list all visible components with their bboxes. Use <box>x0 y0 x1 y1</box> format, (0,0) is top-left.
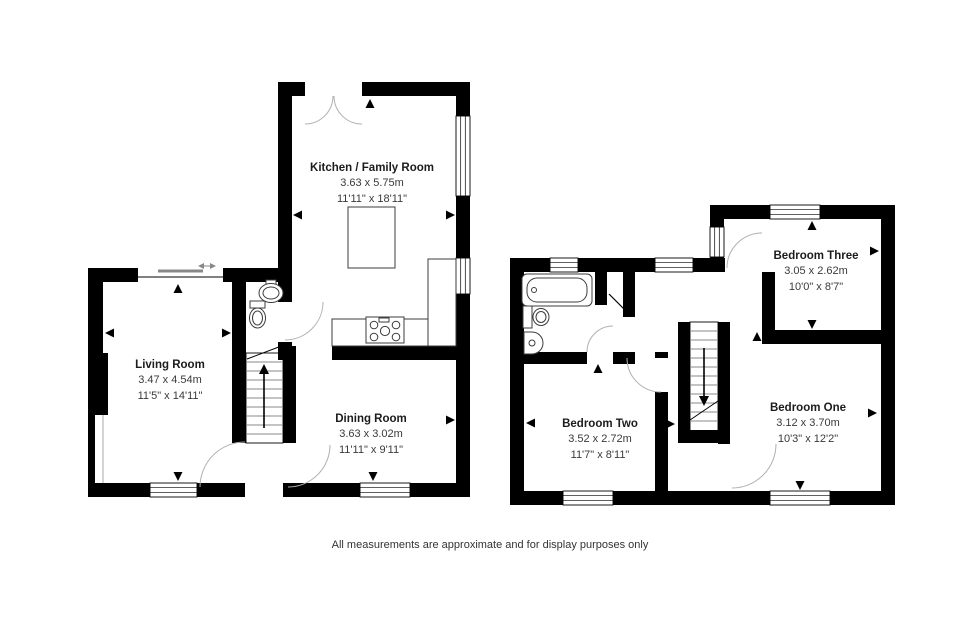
ground-floor-windows <box>150 116 470 497</box>
wall <box>223 268 292 282</box>
window <box>456 258 470 294</box>
wall <box>762 330 895 344</box>
window <box>360 483 410 497</box>
bathroom-fixtures <box>522 274 592 354</box>
window <box>150 483 197 497</box>
stairs-down-icon <box>690 322 718 434</box>
first-floor-walls <box>510 205 895 505</box>
kitchen-fixtures <box>332 207 456 346</box>
wall <box>678 430 727 443</box>
cloakroom-fixtures <box>250 280 284 328</box>
french-doors-icon <box>305 96 362 124</box>
wall <box>881 205 895 505</box>
wall <box>88 353 108 415</box>
window <box>655 258 693 272</box>
window <box>550 258 578 272</box>
wall <box>232 282 246 443</box>
door-arc <box>732 444 776 488</box>
wall <box>678 322 690 434</box>
disclaimer-text: All measurements are approximate and for… <box>0 539 980 551</box>
door-arc <box>288 445 330 487</box>
window <box>456 116 470 196</box>
sink-icon <box>524 332 543 354</box>
wall <box>88 415 95 483</box>
window <box>770 205 820 219</box>
wall <box>88 268 103 353</box>
ground-floor-doors <box>200 302 330 487</box>
door-arc <box>727 233 762 268</box>
sliding-door-icon <box>138 263 223 277</box>
door-arc <box>587 326 613 352</box>
wall <box>332 346 456 360</box>
wall <box>595 272 607 305</box>
wall <box>283 346 296 443</box>
first-floor-plan <box>510 205 895 505</box>
front-door-arc <box>200 442 245 487</box>
window <box>710 227 724 257</box>
ground-floor-plan <box>88 82 470 497</box>
kitchen-island <box>348 207 395 268</box>
toilet-icon <box>250 301 266 328</box>
wall <box>718 322 730 444</box>
wall <box>613 352 635 364</box>
toilet-icon <box>523 306 549 328</box>
bathtub-icon <box>522 274 592 306</box>
counter <box>428 259 456 346</box>
floorplan-canvas: Kitchen / Family Room 3.63 x 5.75m 11'11… <box>0 0 980 638</box>
door-opening <box>305 82 362 96</box>
window <box>563 491 613 505</box>
wall <box>655 352 668 358</box>
door-arc <box>285 302 323 340</box>
window <box>770 491 830 505</box>
hob-icon <box>366 317 404 343</box>
wall <box>655 392 668 491</box>
wall <box>510 352 587 364</box>
